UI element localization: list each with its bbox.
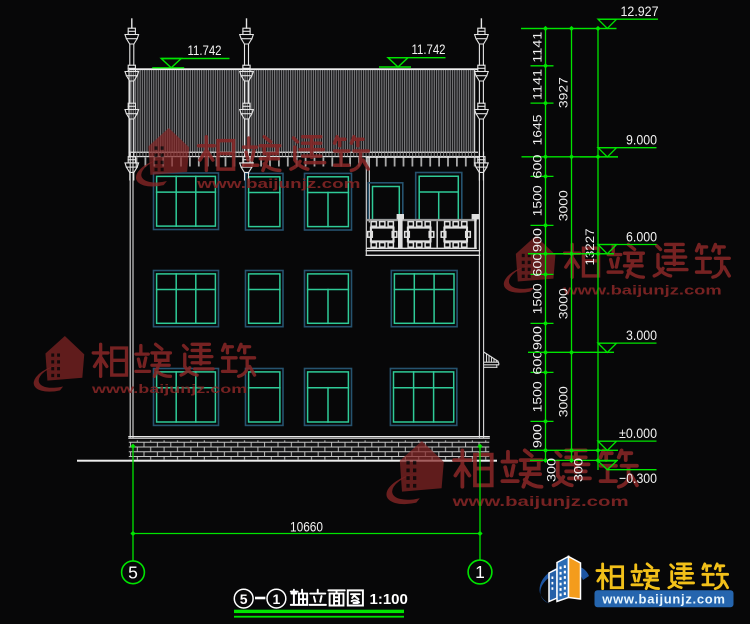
svg-text:3.000: 3.000 [626, 328, 657, 344]
svg-text:11.742: 11.742 [412, 41, 446, 57]
svg-text:±0.000: ±0.000 [619, 426, 657, 442]
svg-text:3000: 3000 [557, 190, 571, 221]
svg-text:1: 1 [273, 591, 281, 607]
svg-text:10660: 10660 [290, 520, 323, 536]
svg-text:9.000: 9.000 [626, 133, 657, 149]
svg-text:1500: 1500 [531, 283, 545, 314]
svg-text:1500: 1500 [531, 381, 545, 412]
svg-text:1: 1 [475, 562, 485, 582]
svg-text:13227: 13227 [583, 228, 597, 265]
svg-text:11.742: 11.742 [188, 42, 222, 58]
svg-text:−0.300: −0.300 [619, 471, 657, 487]
svg-text:3000: 3000 [557, 288, 571, 319]
svg-text:www.baijunjz.com: www.baijunjz.com [601, 592, 725, 607]
svg-text:900: 900 [531, 424, 545, 448]
svg-text:300: 300 [545, 458, 559, 482]
svg-text:300: 300 [572, 458, 586, 482]
svg-text:900: 900 [531, 228, 545, 252]
svg-text:1:100: 1:100 [370, 591, 408, 608]
svg-text:1141: 1141 [531, 69, 545, 100]
svg-text:3927: 3927 [557, 77, 571, 108]
svg-text:900: 900 [531, 326, 545, 350]
svg-text:12.927: 12.927 [621, 4, 659, 20]
svg-text:5: 5 [128, 563, 138, 583]
svg-text:600: 600 [531, 154, 545, 178]
svg-text:6.000: 6.000 [626, 229, 657, 245]
svg-text:1500: 1500 [531, 185, 545, 216]
svg-text:1141: 1141 [531, 31, 545, 62]
svg-text:3000: 3000 [557, 386, 571, 417]
svg-text:1645: 1645 [531, 114, 545, 145]
svg-text:600: 600 [531, 350, 545, 374]
svg-text:5: 5 [240, 591, 248, 607]
svg-text:600: 600 [531, 252, 545, 276]
